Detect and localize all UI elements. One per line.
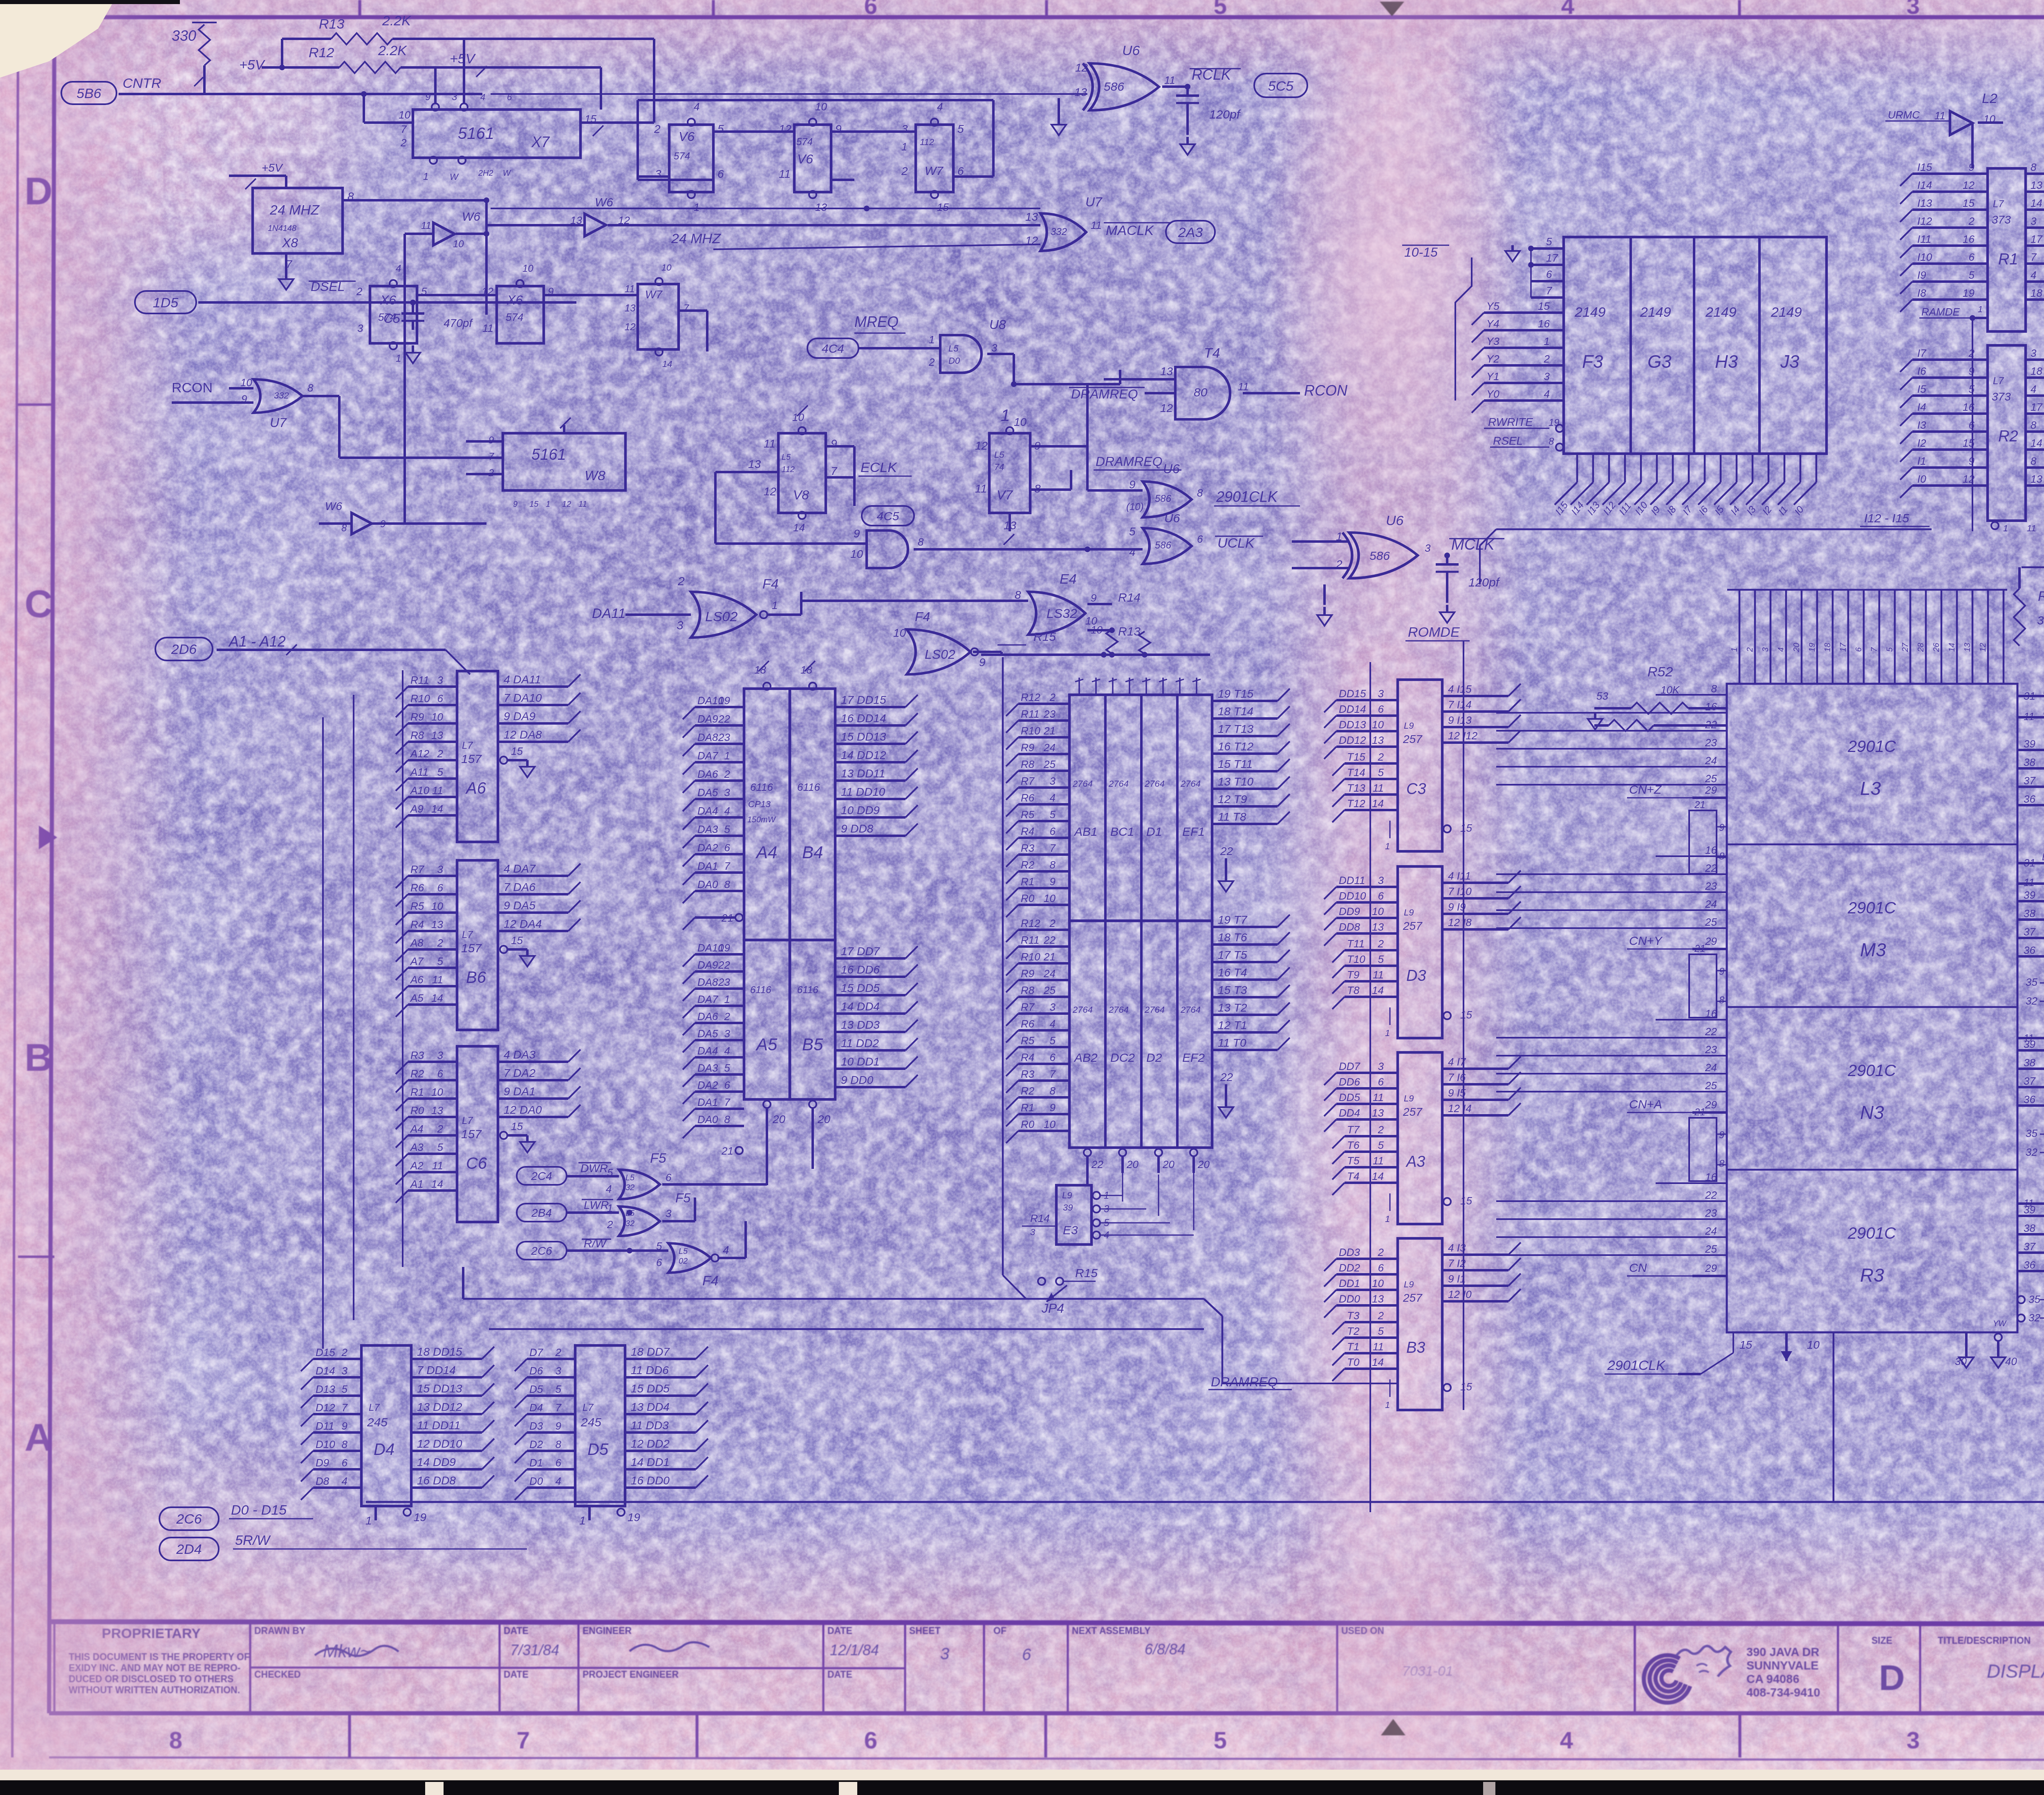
svg-text:3: 3 bbox=[1425, 542, 1431, 554]
svg-text:257: 257 bbox=[1403, 733, 1423, 745]
svg-text:B5: B5 bbox=[802, 1035, 823, 1054]
svg-text:330: 330 bbox=[172, 27, 196, 44]
svg-text:13: 13 bbox=[1372, 1107, 1384, 1119]
svg-text:DA3: DA3 bbox=[697, 1062, 718, 1074]
svg-text:157: 157 bbox=[461, 941, 482, 955]
svg-text:586: 586 bbox=[1155, 539, 1172, 551]
svg-text:1: 1 bbox=[1385, 841, 1390, 851]
svg-text:C6: C6 bbox=[466, 1154, 487, 1172]
svg-text:1: 1 bbox=[724, 993, 730, 1005]
svg-text:DA1: DA1 bbox=[697, 1096, 718, 1108]
svg-text:39: 39 bbox=[2024, 1204, 2035, 1216]
svg-text:4: 4 bbox=[724, 805, 730, 817]
svg-text:D9: D9 bbox=[316, 1457, 329, 1469]
svg-text:4: 4 bbox=[724, 1045, 730, 1057]
svg-text:7 DA6: 7 DA6 bbox=[504, 881, 536, 893]
svg-text:16 T4: 16 T4 bbox=[1218, 966, 1247, 979]
svg-text:20: 20 bbox=[1162, 1158, 1174, 1171]
svg-text:R4: R4 bbox=[410, 918, 424, 931]
svg-text:11: 11 bbox=[1164, 74, 1175, 86]
svg-text:DC2: DC2 bbox=[1110, 1051, 1135, 1064]
svg-text:1: 1 bbox=[724, 750, 730, 762]
svg-text:I11: I11 bbox=[1917, 233, 1931, 245]
svg-text:15: 15 bbox=[511, 745, 523, 757]
svg-text:22: 22 bbox=[1220, 1071, 1233, 1083]
svg-text:2A3: 2A3 bbox=[1178, 224, 1203, 240]
svg-text:157: 157 bbox=[461, 752, 482, 765]
svg-text:L9: L9 bbox=[1404, 1279, 1414, 1289]
svg-text:80: 80 bbox=[1194, 385, 1208, 399]
svg-text:5: 5 bbox=[724, 1062, 731, 1074]
svg-text:L9: L9 bbox=[1404, 721, 1414, 731]
svg-text:T11: T11 bbox=[1347, 938, 1365, 950]
svg-text:13 T2: 13 T2 bbox=[1218, 1001, 1247, 1014]
svg-text:X7: X7 bbox=[531, 134, 550, 150]
svg-text:5: 5 bbox=[1546, 235, 1552, 248]
svg-text:2: 2 bbox=[677, 574, 685, 588]
svg-text:T6: T6 bbox=[1347, 1139, 1360, 1151]
svg-text:13: 13 bbox=[1372, 921, 1384, 933]
svg-text:2: 2 bbox=[488, 467, 494, 478]
svg-text:21: 21 bbox=[1694, 799, 1706, 810]
svg-text:9: 9 bbox=[1969, 365, 1975, 377]
svg-text:6116: 6116 bbox=[750, 984, 771, 995]
svg-text:D5: D5 bbox=[529, 1383, 543, 1395]
svg-text:R0: R0 bbox=[1021, 892, 1035, 904]
svg-text:U6: U6 bbox=[1122, 43, 1140, 58]
svg-text:1: 1 bbox=[1730, 647, 1739, 652]
svg-text:DA5: DA5 bbox=[697, 786, 718, 799]
svg-text:10: 10 bbox=[661, 262, 672, 273]
svg-text:Y4: Y4 bbox=[1486, 318, 1499, 330]
svg-text:DA2: DA2 bbox=[697, 1079, 718, 1091]
svg-text:M3: M3 bbox=[1860, 939, 1886, 960]
svg-text:CN+Y: CN+Y bbox=[1629, 934, 1663, 947]
svg-text:DA6: DA6 bbox=[697, 768, 718, 780]
svg-text:13: 13 bbox=[625, 302, 636, 313]
svg-text:R3: R3 bbox=[1021, 1068, 1035, 1080]
svg-text:RCON: RCON bbox=[172, 380, 213, 395]
svg-text:5: 5 bbox=[342, 1383, 348, 1395]
svg-text:DD3: DD3 bbox=[1339, 1246, 1360, 1258]
svg-text:11 T0: 11 T0 bbox=[1218, 1036, 1246, 1049]
svg-text:11: 11 bbox=[1934, 110, 1945, 122]
svg-text:R11: R11 bbox=[1021, 934, 1040, 946]
svg-text:A1 - A12: A1 - A12 bbox=[228, 633, 286, 650]
svg-text:12: 12 bbox=[1160, 402, 1173, 414]
svg-text:3: 3 bbox=[1378, 687, 1384, 700]
svg-text:3: 3 bbox=[655, 168, 661, 180]
svg-text:13: 13 bbox=[431, 1104, 443, 1117]
svg-text:2: 2 bbox=[654, 123, 661, 135]
svg-text:4: 4 bbox=[2031, 383, 2036, 395]
svg-text:3: 3 bbox=[1378, 874, 1384, 886]
svg-text:6116: 6116 bbox=[797, 984, 818, 995]
svg-text:10: 10 bbox=[399, 109, 410, 121]
svg-text:13 DD11: 13 DD11 bbox=[841, 767, 885, 780]
svg-text:U8: U8 bbox=[989, 317, 1006, 332]
svg-text:11: 11 bbox=[779, 168, 791, 180]
svg-text:7: 7 bbox=[724, 860, 731, 872]
svg-text:10: 10 bbox=[431, 1086, 443, 1098]
svg-text:6: 6 bbox=[556, 1457, 562, 1469]
svg-text:DA7: DA7 bbox=[697, 993, 719, 1005]
svg-text:R3: R3 bbox=[1021, 842, 1035, 854]
svg-text:DA0: DA0 bbox=[697, 878, 718, 891]
svg-text:A4: A4 bbox=[410, 1123, 424, 1135]
svg-text:12: 12 bbox=[562, 499, 571, 508]
svg-text:19: 19 bbox=[718, 694, 730, 707]
svg-text:R12: R12 bbox=[1021, 691, 1040, 703]
svg-text:A8: A8 bbox=[410, 937, 424, 949]
svg-text:L7: L7 bbox=[1993, 375, 2004, 386]
svg-text:4C4: 4C4 bbox=[822, 342, 844, 355]
svg-text:10: 10 bbox=[850, 548, 863, 560]
svg-text:8: 8 bbox=[1719, 850, 1725, 862]
svg-text:16 DD14: 16 DD14 bbox=[841, 712, 886, 725]
svg-text:4: 4 bbox=[723, 1244, 729, 1256]
svg-text:2: 2 bbox=[1378, 1124, 1384, 1136]
svg-text:D2: D2 bbox=[1146, 1051, 1162, 1064]
svg-text:11: 11 bbox=[2027, 523, 2036, 533]
svg-text:8: 8 bbox=[1050, 1085, 1056, 1097]
svg-text:10: 10 bbox=[1372, 905, 1384, 918]
svg-text:23: 23 bbox=[718, 976, 730, 988]
svg-text:R10: R10 bbox=[410, 692, 430, 705]
svg-text:2: 2 bbox=[1968, 215, 1975, 227]
svg-text:15: 15 bbox=[1739, 1338, 1753, 1351]
svg-text:11: 11 bbox=[625, 283, 635, 294]
svg-text:2901CLK: 2901CLK bbox=[1607, 1357, 1666, 1373]
svg-text:5: 5 bbox=[717, 123, 724, 135]
svg-text:15: 15 bbox=[1460, 1009, 1472, 1021]
svg-text:T9: T9 bbox=[1347, 969, 1359, 981]
svg-text:10: 10 bbox=[1044, 892, 1056, 904]
svg-text:332: 332 bbox=[1051, 226, 1067, 237]
svg-text:14: 14 bbox=[2031, 197, 2042, 209]
svg-text:A10: A10 bbox=[410, 784, 430, 797]
svg-text:2D6: 2D6 bbox=[171, 641, 197, 657]
svg-text:3: 3 bbox=[2031, 347, 2037, 359]
svg-text:24: 24 bbox=[1043, 741, 1056, 754]
svg-text:27: 27 bbox=[1901, 642, 1910, 652]
svg-text:16: 16 bbox=[1705, 701, 1717, 713]
svg-text:36: 36 bbox=[2024, 1093, 2035, 1106]
svg-text:EF1: EF1 bbox=[1182, 825, 1205, 838]
svg-text:7 DD14: 7 DD14 bbox=[417, 1364, 456, 1376]
svg-text:R3: R3 bbox=[1860, 1265, 1884, 1286]
svg-text:2: 2 bbox=[1049, 917, 1056, 929]
svg-text:1: 1 bbox=[1978, 304, 1983, 314]
svg-text:R2: R2 bbox=[1021, 859, 1035, 871]
svg-text:W: W bbox=[503, 168, 511, 177]
svg-text:19 T7: 19 T7 bbox=[1218, 913, 1248, 926]
svg-text:6: 6 bbox=[666, 1171, 672, 1184]
svg-text:25: 25 bbox=[1043, 984, 1056, 996]
svg-text:20: 20 bbox=[772, 1113, 786, 1126]
svg-text:R7: R7 bbox=[410, 863, 425, 875]
svg-text:DD13: DD13 bbox=[1339, 718, 1366, 731]
svg-text:6: 6 bbox=[1378, 890, 1384, 902]
svg-text:39: 39 bbox=[2024, 889, 2035, 901]
svg-text:20: 20 bbox=[817, 1113, 831, 1126]
svg-text:9: 9 bbox=[489, 434, 494, 445]
svg-text:EPC: EPC bbox=[2042, 851, 2044, 862]
svg-text:02: 02 bbox=[679, 1256, 688, 1265]
svg-text:C3: C3 bbox=[1406, 780, 1426, 797]
svg-text:8: 8 bbox=[1719, 994, 1725, 1005]
svg-text:4: 4 bbox=[342, 1475, 347, 1487]
svg-text:W6: W6 bbox=[595, 195, 613, 209]
svg-text:YW: YW bbox=[1993, 1319, 2007, 1328]
svg-text:G3: G3 bbox=[1647, 351, 1672, 372]
svg-text:2901C: 2901C bbox=[1847, 1224, 1896, 1242]
svg-text:15 DD5: 15 DD5 bbox=[841, 982, 880, 994]
svg-text:12: 12 bbox=[779, 123, 792, 135]
svg-text:T8: T8 bbox=[1347, 984, 1360, 996]
svg-text:586: 586 bbox=[1155, 493, 1172, 504]
svg-text:DD2: DD2 bbox=[1339, 1262, 1360, 1274]
svg-text:A5: A5 bbox=[755, 1035, 778, 1054]
svg-text:6: 6 bbox=[437, 692, 444, 705]
svg-text:2: 2 bbox=[1968, 347, 1975, 359]
svg-text:D1: D1 bbox=[1146, 825, 1162, 838]
svg-text:11: 11 bbox=[1373, 1091, 1384, 1103]
svg-text:2C6: 2C6 bbox=[531, 1244, 552, 1257]
svg-text:A7: A7 bbox=[410, 955, 424, 967]
svg-text:12: 12 bbox=[1978, 643, 1987, 652]
svg-text:R9: R9 bbox=[1021, 967, 1034, 980]
svg-text:5: 5 bbox=[1050, 1034, 1056, 1047]
svg-text:V6: V6 bbox=[679, 129, 695, 144]
svg-text:W6: W6 bbox=[325, 500, 342, 513]
svg-text:L9: L9 bbox=[1404, 907, 1414, 918]
svg-text:38: 38 bbox=[2024, 1056, 2035, 1069]
svg-text:574: 574 bbox=[506, 311, 523, 323]
svg-text:V6: V6 bbox=[797, 152, 813, 166]
svg-text:6116: 6116 bbox=[797, 781, 820, 793]
svg-text:19: 19 bbox=[718, 942, 730, 954]
svg-text:14: 14 bbox=[431, 1178, 443, 1190]
svg-text:A12: A12 bbox=[410, 748, 430, 760]
svg-text:Y3: Y3 bbox=[1486, 335, 1499, 347]
svg-text:4 I11: 4 I11 bbox=[1448, 870, 1471, 882]
svg-text:15 T3: 15 T3 bbox=[1218, 984, 1247, 996]
svg-text:T0: T0 bbox=[1347, 1356, 1360, 1368]
svg-text:AB2: AB2 bbox=[1074, 1051, 1098, 1064]
svg-text:T4: T4 bbox=[1347, 1170, 1359, 1182]
svg-text:DD12: DD12 bbox=[1339, 734, 1366, 746]
svg-text:10: 10 bbox=[893, 627, 906, 639]
svg-text:14: 14 bbox=[1947, 643, 1956, 652]
svg-text:1: 1 bbox=[2003, 523, 2008, 533]
svg-text:6: 6 bbox=[1378, 1262, 1384, 1274]
svg-text:R14: R14 bbox=[1030, 1212, 1050, 1224]
svg-text:35: 35 bbox=[2028, 1293, 2040, 1305]
svg-text:12 I0: 12 I0 bbox=[1448, 1288, 1472, 1300]
svg-text:23: 23 bbox=[718, 731, 730, 743]
svg-text:13: 13 bbox=[1074, 86, 1087, 98]
svg-text:3: 3 bbox=[2031, 215, 2037, 227]
svg-text:L5: L5 bbox=[782, 452, 791, 461]
svg-text:9: 9 bbox=[1050, 875, 1056, 888]
svg-text:F4: F4 bbox=[762, 576, 779, 591]
svg-text:V8: V8 bbox=[793, 488, 809, 502]
svg-text:D2: D2 bbox=[529, 1438, 543, 1450]
svg-text:L7: L7 bbox=[369, 1402, 380, 1413]
svg-text:373: 373 bbox=[1992, 213, 2011, 226]
svg-text:DA5: DA5 bbox=[697, 1027, 718, 1040]
svg-text:11: 11 bbox=[432, 784, 443, 797]
svg-text:R52: R52 bbox=[1647, 664, 1673, 679]
svg-text:2764: 2764 bbox=[1180, 1005, 1201, 1015]
svg-text:20: 20 bbox=[1126, 1158, 1139, 1171]
svg-text:22: 22 bbox=[718, 959, 730, 971]
svg-text:24 MHZ: 24 MHZ bbox=[269, 202, 320, 217]
svg-text:39: 39 bbox=[2024, 738, 2035, 750]
svg-text:19: 19 bbox=[1963, 287, 1975, 299]
svg-text:R15: R15 bbox=[1075, 1266, 1098, 1280]
svg-text:R7: R7 bbox=[1021, 1001, 1035, 1013]
svg-text:16: 16 bbox=[1705, 844, 1717, 856]
svg-text:574: 574 bbox=[674, 150, 690, 161]
svg-text:470pf: 470pf bbox=[444, 317, 473, 329]
svg-text:CP13: CP13 bbox=[748, 799, 771, 809]
svg-text:9 DA5: 9 DA5 bbox=[504, 899, 536, 912]
svg-text:16: 16 bbox=[1538, 318, 1550, 330]
svg-text:DRAMREQ: DRAMREQ bbox=[1096, 454, 1163, 469]
svg-text:LWR: LWR bbox=[584, 1199, 609, 1211]
svg-text:DA8: DA8 bbox=[697, 976, 718, 988]
svg-text:6: 6 bbox=[1378, 703, 1384, 715]
svg-text:24: 24 bbox=[1043, 967, 1056, 980]
svg-text:6: 6 bbox=[1378, 1076, 1384, 1088]
svg-text:18 T14: 18 T14 bbox=[1218, 705, 1253, 718]
svg-text:W8: W8 bbox=[585, 468, 605, 483]
svg-text:12 DA8: 12 DA8 bbox=[504, 728, 542, 741]
svg-text:11 DD2: 11 DD2 bbox=[841, 1037, 879, 1050]
svg-text:2: 2 bbox=[1049, 691, 1056, 703]
svg-text:17 T13: 17 T13 bbox=[1218, 723, 1254, 735]
svg-text:5: 5 bbox=[1378, 1139, 1384, 1151]
svg-text:32: 32 bbox=[2026, 995, 2037, 1007]
svg-text:D0: D0 bbox=[948, 356, 960, 366]
svg-text:I13: I13 bbox=[1917, 197, 1932, 209]
svg-text:19: 19 bbox=[414, 1511, 426, 1524]
svg-text:18: 18 bbox=[2031, 287, 2042, 299]
svg-text:I1: I1 bbox=[1917, 455, 1926, 467]
svg-text:1: 1 bbox=[546, 499, 550, 508]
svg-text:W7: W7 bbox=[645, 288, 663, 301]
svg-text:6: 6 bbox=[342, 1457, 348, 1469]
svg-text:3: 3 bbox=[991, 342, 997, 354]
svg-text:N3: N3 bbox=[1860, 1102, 1884, 1123]
svg-text:2C6: 2C6 bbox=[176, 1511, 202, 1526]
svg-text:24: 24 bbox=[1705, 898, 1717, 910]
svg-text:5: 5 bbox=[1885, 647, 1894, 652]
svg-text:13: 13 bbox=[1963, 643, 1972, 652]
svg-text:53: 53 bbox=[1596, 690, 1608, 702]
svg-text:L9: L9 bbox=[1062, 1190, 1072, 1200]
svg-text:+5V: +5V bbox=[239, 57, 266, 72]
svg-text:4: 4 bbox=[556, 1475, 561, 1487]
svg-text:3: 3 bbox=[1030, 1227, 1035, 1237]
svg-text:10: 10 bbox=[1372, 718, 1384, 731]
svg-text:DRAMREQ: DRAMREQ bbox=[1211, 1374, 1278, 1389]
svg-text:3: 3 bbox=[437, 863, 444, 875]
svg-text:21: 21 bbox=[721, 1145, 733, 1157]
svg-text:11: 11 bbox=[1373, 1155, 1384, 1167]
svg-text:F4: F4 bbox=[702, 1273, 719, 1288]
svg-text:1: 1 bbox=[365, 1514, 372, 1527]
svg-text:DWR: DWR bbox=[580, 1162, 608, 1175]
svg-text:2.2K: 2.2K bbox=[378, 43, 407, 58]
svg-text:2: 2 bbox=[555, 1346, 562, 1359]
svg-text:A11: A11 bbox=[410, 766, 428, 778]
svg-text:14: 14 bbox=[1372, 1170, 1384, 1182]
svg-text:21: 21 bbox=[1694, 1106, 1706, 1117]
svg-text:12 I4: 12 I4 bbox=[1448, 1102, 1472, 1115]
svg-text:17 DD15: 17 DD15 bbox=[841, 694, 886, 706]
svg-text:13: 13 bbox=[815, 201, 827, 213]
svg-text:I12: I12 bbox=[1917, 215, 1932, 227]
svg-text:2901CLK: 2901CLK bbox=[1216, 488, 1278, 505]
svg-text:8: 8 bbox=[1197, 487, 1203, 499]
svg-text:5: 5 bbox=[957, 123, 964, 135]
svg-text:12 T1: 12 T1 bbox=[1218, 1019, 1247, 1032]
svg-text:12 DD2: 12 DD2 bbox=[631, 1437, 670, 1450]
svg-text:21: 21 bbox=[1043, 951, 1056, 963]
svg-text:2764: 2764 bbox=[1144, 779, 1165, 789]
svg-text:5: 5 bbox=[1050, 808, 1056, 821]
svg-text:586: 586 bbox=[1104, 80, 1124, 93]
svg-text:9: 9 bbox=[979, 656, 986, 669]
svg-text:2764: 2764 bbox=[1072, 779, 1093, 789]
svg-text:12: 12 bbox=[764, 485, 777, 498]
svg-text:(10): (10) bbox=[1126, 501, 1144, 512]
svg-text:120pf: 120pf bbox=[1468, 575, 1500, 589]
svg-text:11 DD6: 11 DD6 bbox=[631, 1364, 669, 1376]
svg-text:3: 3 bbox=[357, 322, 363, 334]
svg-text:I12 - I15: I12 - I15 bbox=[1864, 511, 1909, 525]
svg-text:1N4148: 1N4148 bbox=[268, 224, 296, 233]
svg-text:29: 29 bbox=[1705, 1099, 1717, 1111]
svg-text:14 DD4: 14 DD4 bbox=[841, 1000, 880, 1013]
svg-text:21: 21 bbox=[1043, 725, 1056, 737]
svg-text:DRAMREQ: DRAMREQ bbox=[1071, 387, 1138, 401]
svg-text:9: 9 bbox=[425, 91, 430, 102]
svg-text:112: 112 bbox=[782, 465, 795, 474]
svg-text:6: 6 bbox=[1969, 251, 1975, 263]
svg-text:R6: R6 bbox=[410, 882, 424, 894]
svg-text:10 DD1: 10 DD1 bbox=[841, 1055, 880, 1068]
svg-text:3: 3 bbox=[666, 1207, 672, 1220]
svg-text:5: 5 bbox=[437, 1141, 444, 1153]
svg-text:2149: 2149 bbox=[1771, 304, 1802, 320]
svg-text:9: 9 bbox=[513, 499, 518, 508]
svg-text:A3: A3 bbox=[410, 1141, 424, 1153]
svg-text:257: 257 bbox=[1403, 1106, 1423, 1118]
svg-text:L7: L7 bbox=[583, 1402, 594, 1413]
svg-text:14: 14 bbox=[431, 803, 443, 815]
svg-text:15 T11: 15 T11 bbox=[1218, 758, 1253, 770]
svg-text:15: 15 bbox=[1460, 822, 1472, 834]
svg-text:245: 245 bbox=[580, 1415, 601, 1429]
svg-text:32: 32 bbox=[625, 1183, 634, 1192]
svg-text:D5: D5 bbox=[587, 1440, 609, 1458]
svg-text:3: 3 bbox=[677, 618, 684, 632]
svg-text:6: 6 bbox=[717, 168, 724, 180]
